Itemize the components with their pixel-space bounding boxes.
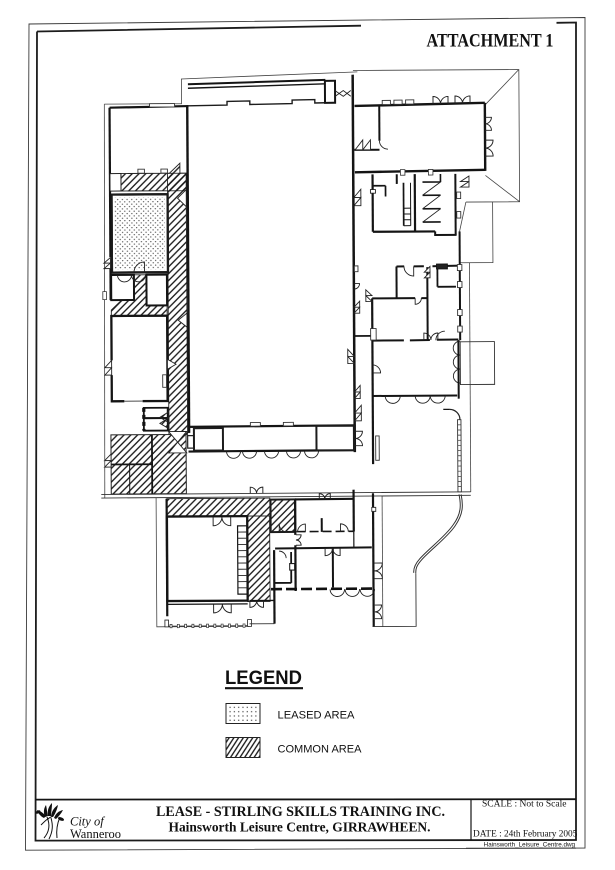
svg-text:LEASE - STIRLING SKILLS TRAINI: LEASE - STIRLING SKILLS TRAINING INC. [156,804,445,820]
svg-text:LEGEND: LEGEND [225,668,302,689]
svg-text:DATE : 24th February 2005: DATE : 24th February 2005 [473,830,578,840]
svg-text:Hainsworth_Leisure_Centre.dwg: Hainsworth_Leisure_Centre.dwg [484,842,576,849]
svg-text:SCALE : Not to Scale: SCALE : Not to Scale [482,800,566,810]
svg-text:Hainsworth Leisure Centre, GIR: Hainsworth Leisure Centre, GIRRAWHEEN. [169,821,431,836]
svg-text:Wanneroo: Wanneroo [70,827,121,841]
svg-text:ATTACHMENT 1: ATTACHMENT 1 [427,32,554,52]
svg-text:LEASED AREA: LEASED AREA [278,710,356,722]
svg-text:COMMON AREA: COMMON AREA [278,744,363,756]
